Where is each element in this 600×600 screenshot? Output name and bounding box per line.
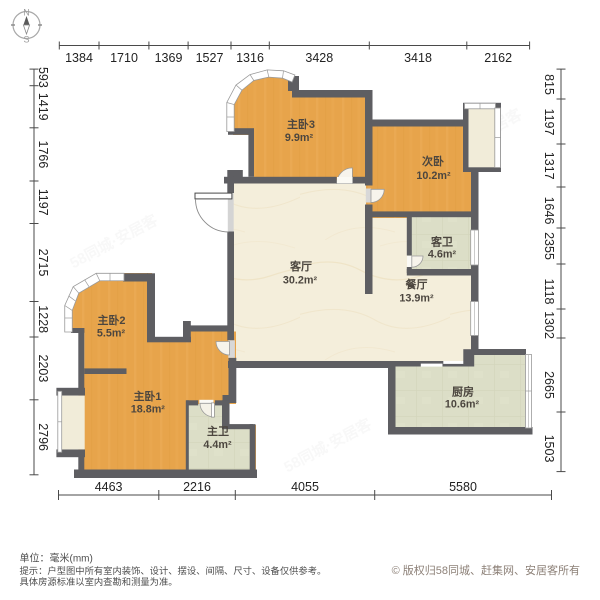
svg-text:4.4m²: 4.4m² [203,439,232,451]
svg-text:1317: 1317 [542,152,556,180]
svg-text:2796: 2796 [36,423,50,451]
svg-text:2665: 2665 [542,371,556,399]
svg-text:提示：户型图中所有室内装饰、设计、摆设、间隔、尺寸、设备仅供: 提示：户型图中所有室内装饰、设计、摆设、间隔、尺寸、设备仅供参考。 [20,565,327,576]
svg-text:次卧: 次卧 [422,154,444,168]
svg-text:1118: 1118 [542,279,556,305]
svg-text:主卧3: 主卧3 [287,117,315,131]
svg-text:3418: 3418 [404,51,432,65]
svg-text:1302: 1302 [542,311,556,339]
svg-text:1710: 1710 [110,51,138,65]
svg-text:2162: 2162 [484,51,512,65]
svg-text:1646: 1646 [542,197,556,225]
svg-text:58同城·安居客: 58同城·安居客 [281,414,376,476]
svg-text:2203: 2203 [36,354,50,382]
svg-text:客卫: 客卫 [430,235,453,249]
svg-text:10.2m²: 10.2m² [416,170,451,182]
svg-text:13.9m²: 13.9m² [399,293,434,305]
svg-text:1384: 1384 [65,51,93,65]
svg-text:10.6m²: 10.6m² [445,399,480,411]
svg-text:厨房: 厨房 [452,385,474,399]
svg-text:4055: 4055 [291,480,319,494]
svg-text:1527: 1527 [196,51,224,65]
svg-text:1197: 1197 [36,189,50,216]
svg-text:1369: 1369 [155,51,183,65]
svg-text:主卧1: 主卧1 [133,389,161,403]
svg-text:具体房源标准以室内查勘和测量为准。: 具体房源标准以室内查勘和测量为准。 [20,576,178,587]
svg-text:1316: 1316 [236,51,264,65]
svg-text:5.5m²: 5.5m² [97,328,126,340]
svg-text:主卧2: 主卧2 [97,313,125,327]
svg-text:1419: 1419 [36,93,50,121]
svg-text:© 版权归58同城、赶集网、安居客所有: © 版权归58同城、赶集网、安居客所有 [392,563,580,577]
svg-text:815: 815 [542,74,556,95]
svg-text:30.2m²: 30.2m² [283,275,318,287]
svg-text:5580: 5580 [449,480,477,494]
svg-text:2715: 2715 [36,249,50,277]
svg-text:2355: 2355 [542,232,556,260]
svg-text:1503: 1503 [542,435,556,463]
svg-text:客厅: 客厅 [289,259,312,273]
svg-text:单位：毫米(mm): 单位：毫米(mm) [20,552,93,565]
svg-text:9.9m²: 9.9m² [285,132,314,144]
svg-text:18.8m²: 18.8m² [131,404,166,416]
svg-text:1766: 1766 [36,140,50,168]
svg-text:餐厅: 餐厅 [405,277,428,291]
svg-text:S: S [23,35,29,45]
svg-text:2216: 2216 [183,480,211,494]
svg-text:4.6m²: 4.6m² [428,248,457,260]
svg-text:4463: 4463 [95,480,123,494]
svg-text:593: 593 [36,67,50,88]
svg-text:1228: 1228 [36,305,50,333]
svg-text:1197: 1197 [542,109,556,136]
svg-text:3428: 3428 [305,51,333,65]
svg-text:58同城·安居客: 58同城·安居客 [67,210,162,272]
svg-text:主卫: 主卫 [207,424,229,438]
